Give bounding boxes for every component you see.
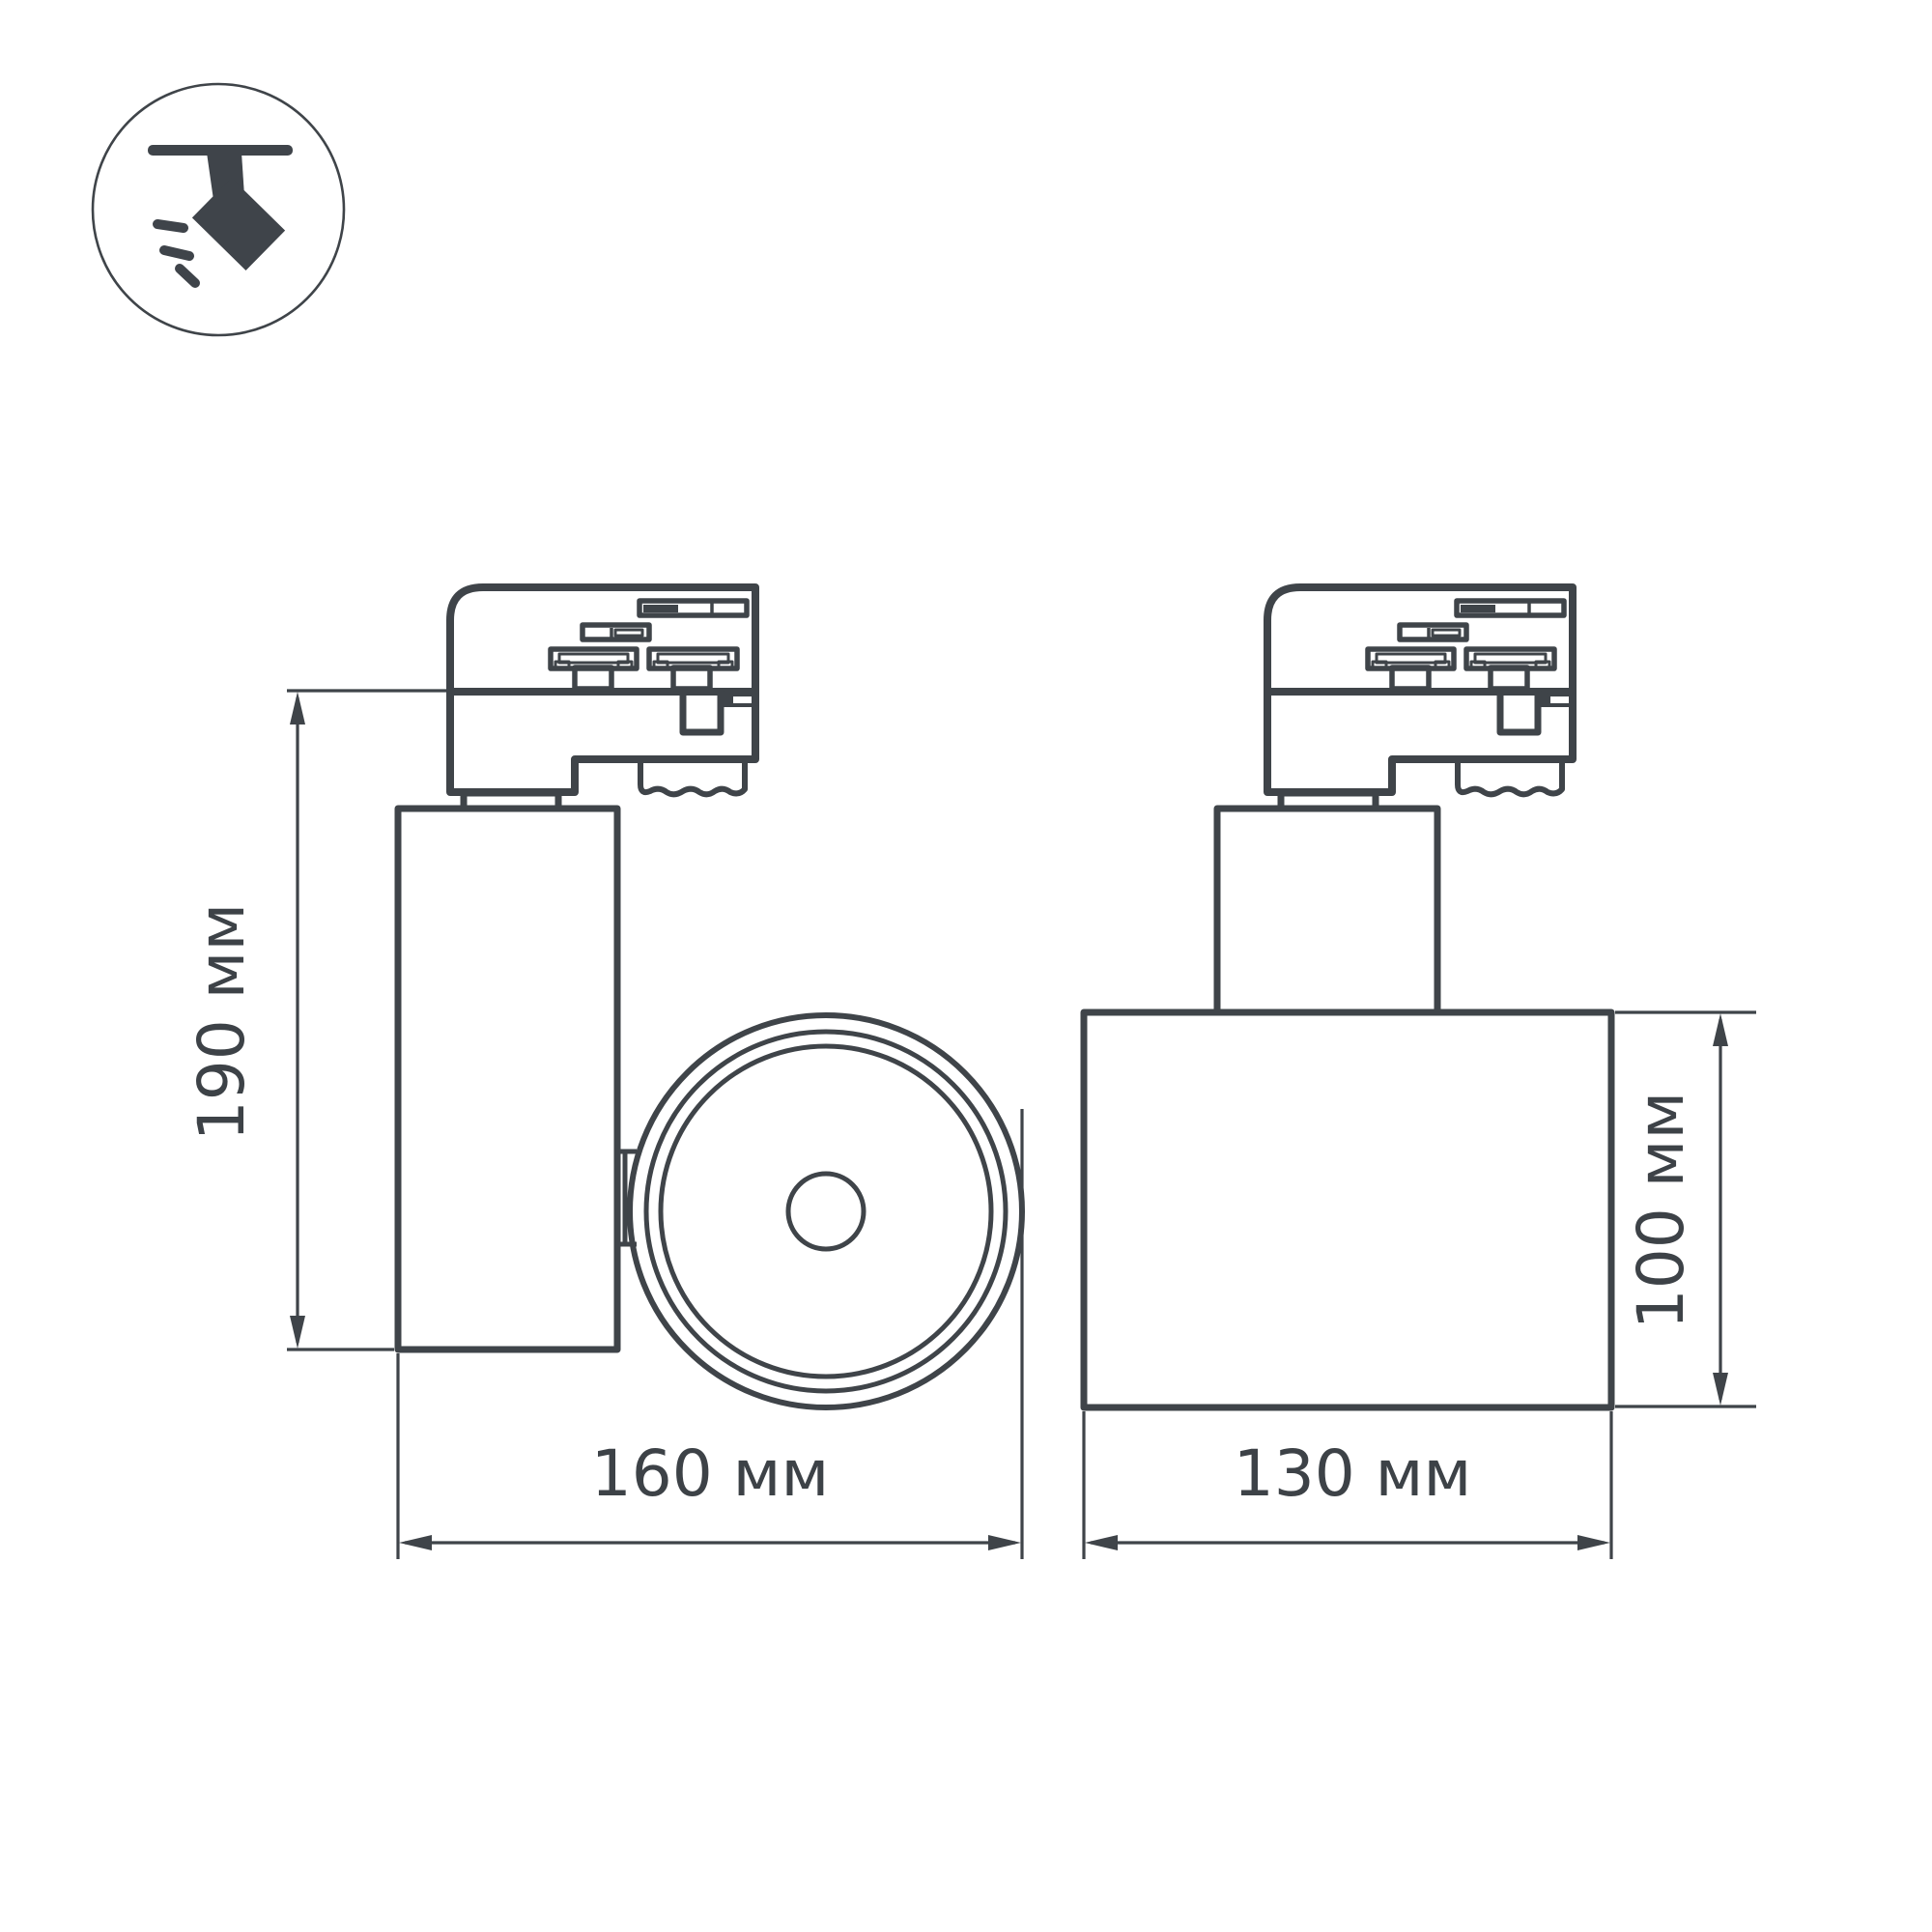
arrowhead-left: [399, 1535, 432, 1550]
lens-inner-ring: [661, 1046, 991, 1377]
adapter-lower-outline: [450, 692, 755, 792]
arrowhead-down: [290, 1316, 305, 1349]
dimension-label-190: 190 мм: [185, 903, 259, 1142]
adapter-t-contact: [649, 649, 737, 689]
dimension-label-160: 160 мм: [591, 1436, 830, 1511]
arrowhead-up: [1713, 1013, 1728, 1046]
technical-drawing: 190 мм 160 мм 130 мм 100 мм: [0, 0, 1932, 1932]
lens-outer-ring: [630, 1015, 1022, 1407]
dimension-width-front: 130 мм: [1084, 1411, 1611, 1559]
track-spotlight-icon: [93, 84, 344, 335]
arrowhead-right: [1577, 1535, 1610, 1550]
lamp-body-front: [1084, 1012, 1611, 1407]
dimension-label-130: 130 мм: [1234, 1436, 1472, 1511]
adapter-slot-top-contact: [643, 605, 678, 612]
drawing-page: 190 мм 160 мм 130 мм 100 мм: [0, 0, 1932, 1932]
front-view: [1084, 809, 1611, 1407]
lens-led-center: [788, 1174, 864, 1249]
arrowhead-up: [290, 692, 305, 724]
side-view: [398, 809, 1022, 1407]
lamp-neck-front: [1217, 809, 1437, 1012]
arrowhead-down: [1713, 1373, 1728, 1406]
adapter-notch: [731, 695, 754, 705]
adapter-connector: [640, 759, 745, 794]
track-adapter-right: [1267, 587, 1573, 809]
icon-light-rays: [157, 224, 195, 283]
dimension-width-side: 160 мм: [398, 1109, 1022, 1559]
lens-middle-ring: [646, 1032, 1006, 1391]
icon-lamp-head: [192, 178, 285, 270]
arrowhead-right: [988, 1535, 1021, 1550]
dimension-label-100: 100 мм: [1624, 1092, 1698, 1330]
adapter-t-contact: [551, 649, 637, 689]
track-adapter: [450, 587, 755, 809]
dimension-height-front: 100 мм: [1615, 1012, 1756, 1406]
adapter-hook: [683, 692, 721, 732]
arrowhead-left: [1085, 1535, 1118, 1550]
adapter-slot-mid-inner: [615, 630, 642, 636]
dimension-height-side: 190 мм: [185, 691, 446, 1350]
lamp-body-side: [398, 809, 617, 1350]
